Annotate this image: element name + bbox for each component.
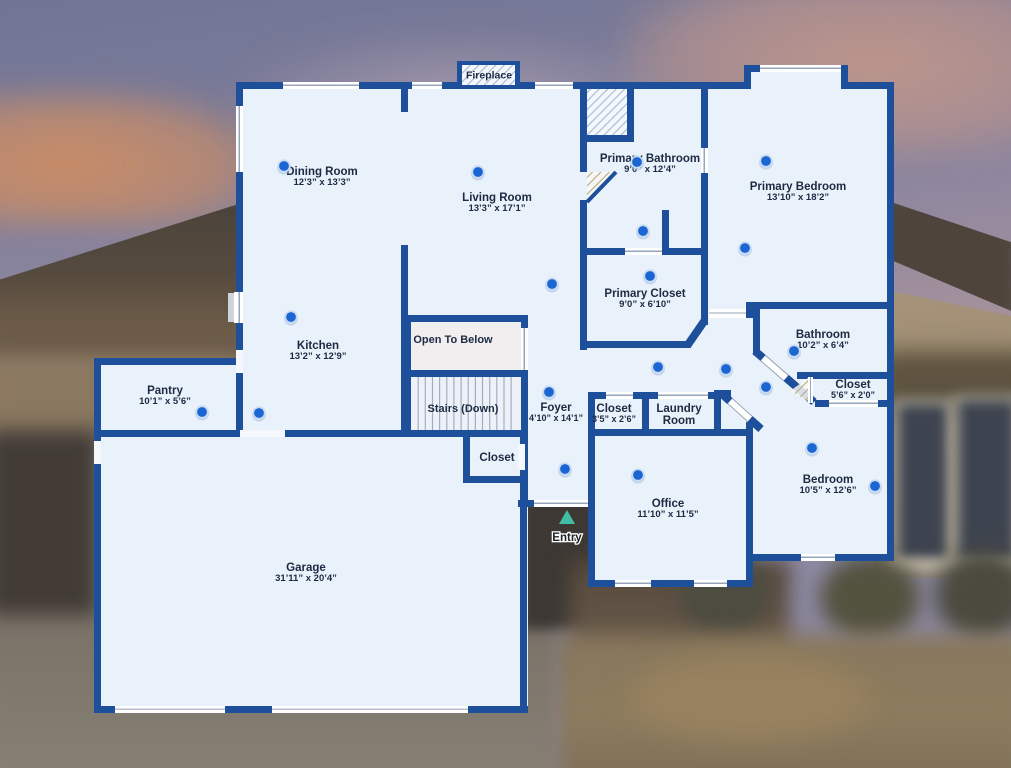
svg-text:12’3” x 13’3”: 12’3” x 13’3” <box>293 177 350 188</box>
svg-text:11’10” x 11’5”: 11’10” x 11’5” <box>637 509 699 520</box>
svg-text:10’5” x 12’6”: 10’5” x 12’6” <box>799 485 856 496</box>
svg-text:13’3” x 17’1”: 13’3” x 17’1” <box>468 203 525 214</box>
svg-text:Stairs (Down): Stairs (Down) <box>428 403 499 415</box>
svg-text:4’10” x 14’1”: 4’10” x 14’1” <box>529 413 583 423</box>
svg-text:10’2” x 6’4”: 10’2” x 6’4” <box>797 340 849 351</box>
svg-text:Room: Room <box>663 415 696 427</box>
svg-text:13’10” x 18’2”: 13’10” x 18’2” <box>767 192 830 203</box>
svg-text:Open To Below: Open To Below <box>413 334 493 346</box>
svg-text:5’6” x 2’0”: 5’6” x 2’0” <box>831 390 875 400</box>
svg-text:Fireplace: Fireplace <box>466 70 512 82</box>
svg-text:Closet: Closet <box>479 452 514 464</box>
svg-text:10’1” x 5’6”: 10’1” x 5’6” <box>139 396 191 407</box>
svg-text:9’0” x 6’10”: 9’0” x 6’10” <box>619 299 671 310</box>
svg-text:31’11” x 20’4”: 31’11” x 20’4” <box>275 573 337 584</box>
svg-text:Laundry: Laundry <box>656 403 702 415</box>
svg-text:13’2” x 12’9”: 13’2” x 12’9” <box>289 351 346 362</box>
svg-text:3’5” x 2’6”: 3’5” x 2’6” <box>592 414 636 424</box>
svg-text:Entry: Entry <box>552 532 582 544</box>
